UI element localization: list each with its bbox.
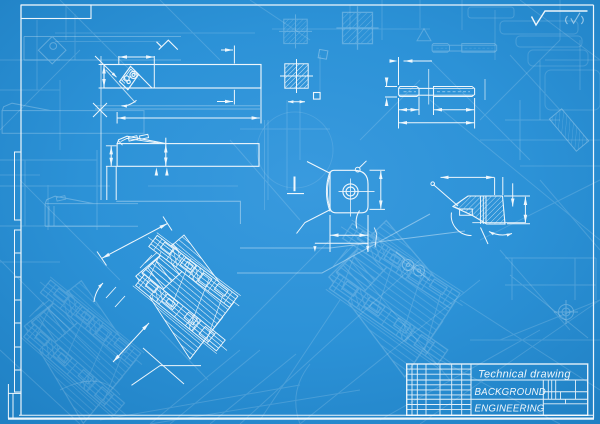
svg-text:Technical drawing: Technical drawing [478,368,571,380]
svg-text:BACKGROUND: BACKGROUND [475,387,546,398]
svg-text:ENGINEERING: ENGINEERING [475,403,545,414]
